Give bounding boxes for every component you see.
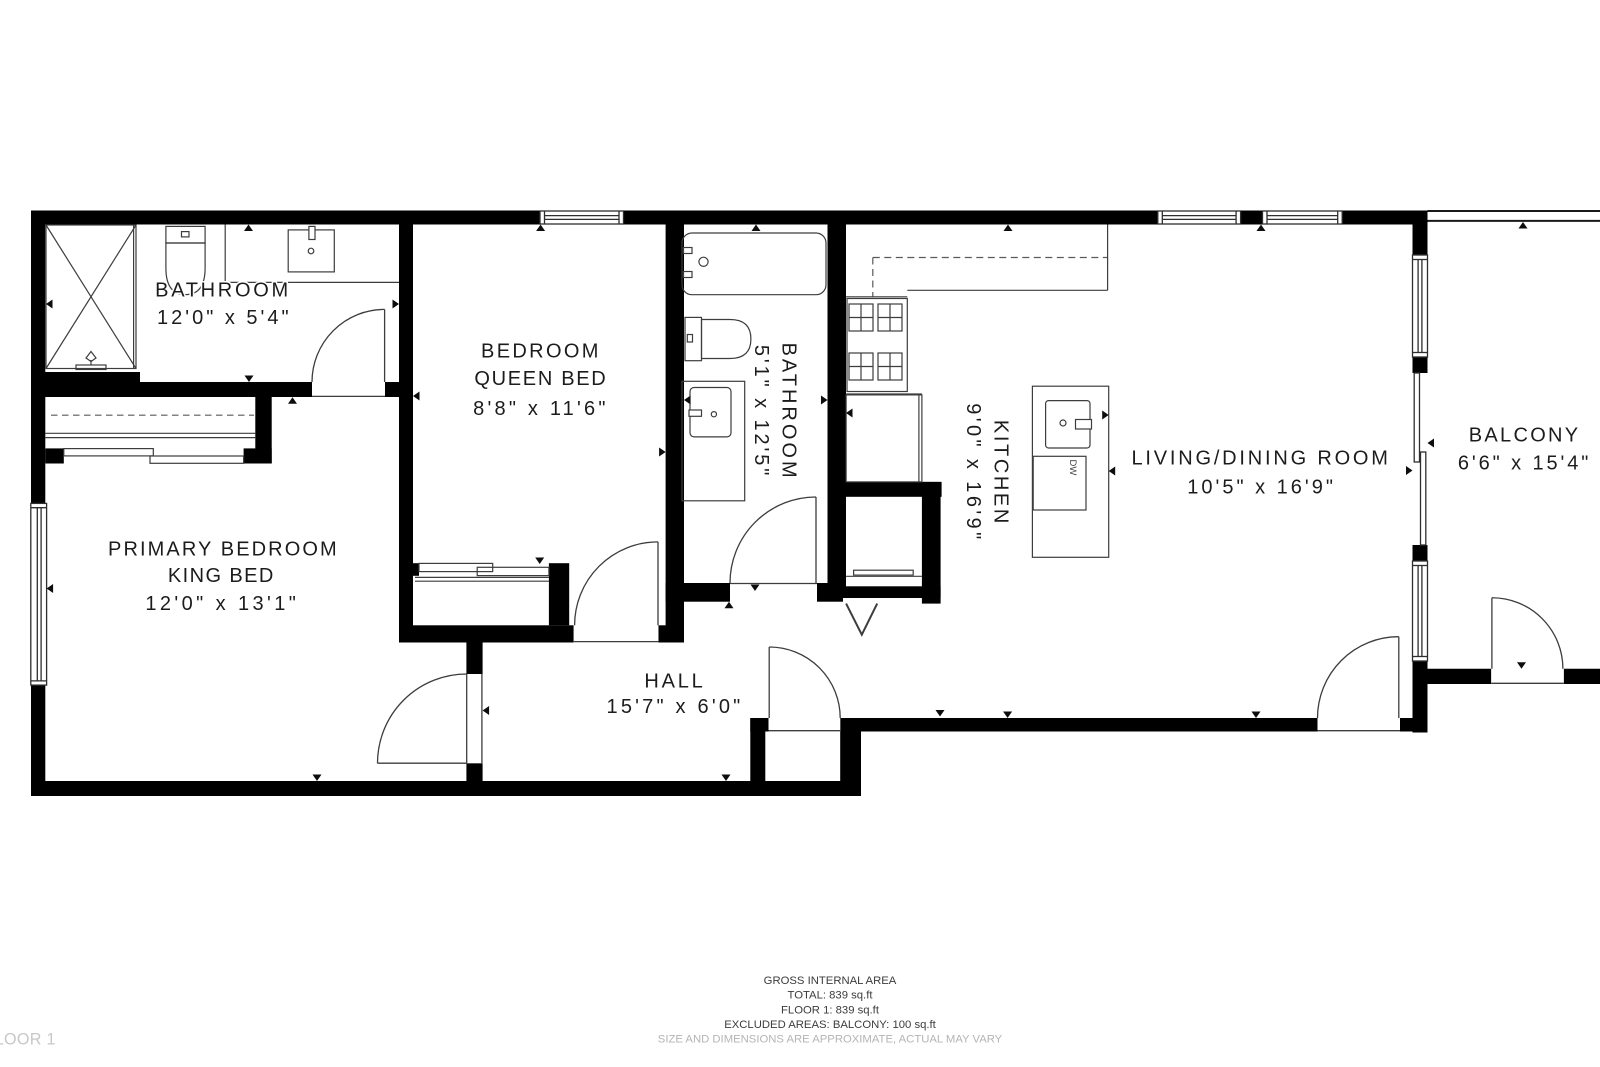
svg-text:EXCLUDED AREAS: BALCONY: 100 s: EXCLUDED AREAS: BALCONY: 100 sq.ft <box>724 1019 936 1031</box>
svg-text:HALL: HALL <box>644 671 705 693</box>
svg-text:15'7" x 6'0": 15'7" x 6'0" <box>607 696 744 718</box>
svg-text:QUEEN BED: QUEEN BED <box>474 368 607 390</box>
svg-text:TOTAL: 839 sq.ft: TOTAL: 839 sq.ft <box>788 990 874 1002</box>
svg-text:LIVING/DINING ROOM: LIVING/DINING ROOM <box>1131 448 1390 470</box>
svg-text:8'8" x 11'6": 8'8" x 11'6" <box>473 398 608 420</box>
svg-text:DW: DW <box>1067 460 1078 476</box>
svg-text:12'0" x 13'1": 12'0" x 13'1" <box>145 593 299 615</box>
svg-text:FLOOR 1: 839 sq.ft: FLOOR 1: 839 sq.ft <box>781 1004 880 1016</box>
svg-text:6'6" x 15'4": 6'6" x 15'4" <box>1458 453 1591 475</box>
svg-text:KITCHEN: KITCHEN <box>989 420 1011 526</box>
svg-text:PRIMARY BEDROOM: PRIMARY BEDROOM <box>108 538 339 560</box>
svg-text:BATHROOM: BATHROOM <box>778 343 800 481</box>
svg-text:9'0" x 16'9": 9'0" x 16'9" <box>962 403 984 542</box>
svg-text:SIZE AND DIMENSIONS ARE APPROX: SIZE AND DIMENSIONS ARE APPROXIMATE, ACT… <box>658 1033 1003 1045</box>
svg-text:10'5" x 16'9": 10'5" x 16'9" <box>1187 477 1336 499</box>
svg-text:BEDROOM: BEDROOM <box>481 341 601 363</box>
svg-text:BATHROOM: BATHROOM <box>155 279 291 301</box>
svg-text:5'1" x 12'5": 5'1" x 12'5" <box>750 345 772 478</box>
svg-text:FLOOR 1: FLOOR 1 <box>0 1031 56 1049</box>
svg-text:12'0" x 5'4": 12'0" x 5'4" <box>157 307 292 329</box>
svg-text:GROSS INTERNAL AREA: GROSS INTERNAL AREA <box>764 975 897 987</box>
svg-text:BALCONY: BALCONY <box>1469 425 1581 447</box>
svg-text:KING BED: KING BED <box>168 565 275 587</box>
